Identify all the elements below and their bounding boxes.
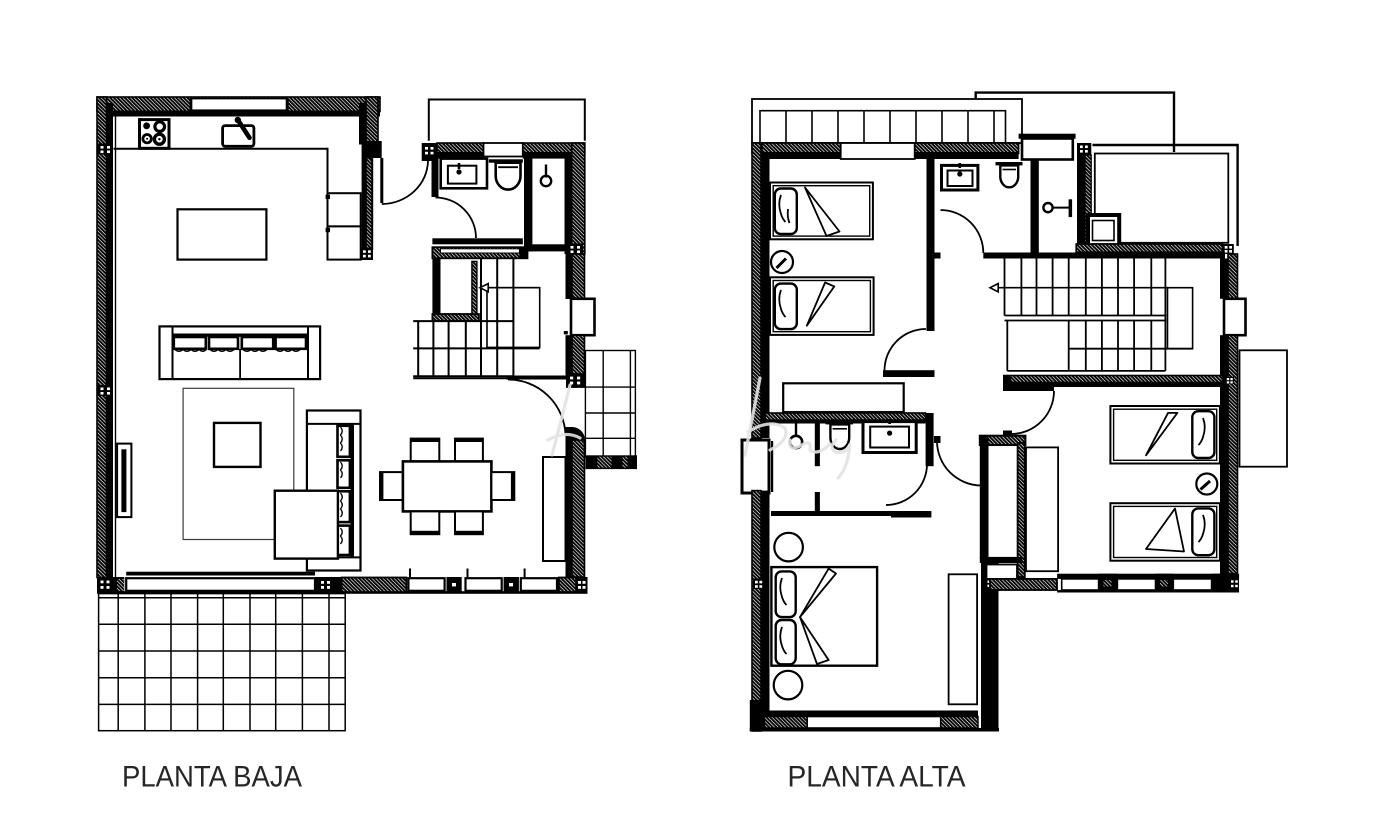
svg-text:PLANTA ALTA: PLANTA ALTA — [788, 761, 966, 794]
svg-text:PLANTA BAJA: PLANTA BAJA — [122, 761, 302, 794]
